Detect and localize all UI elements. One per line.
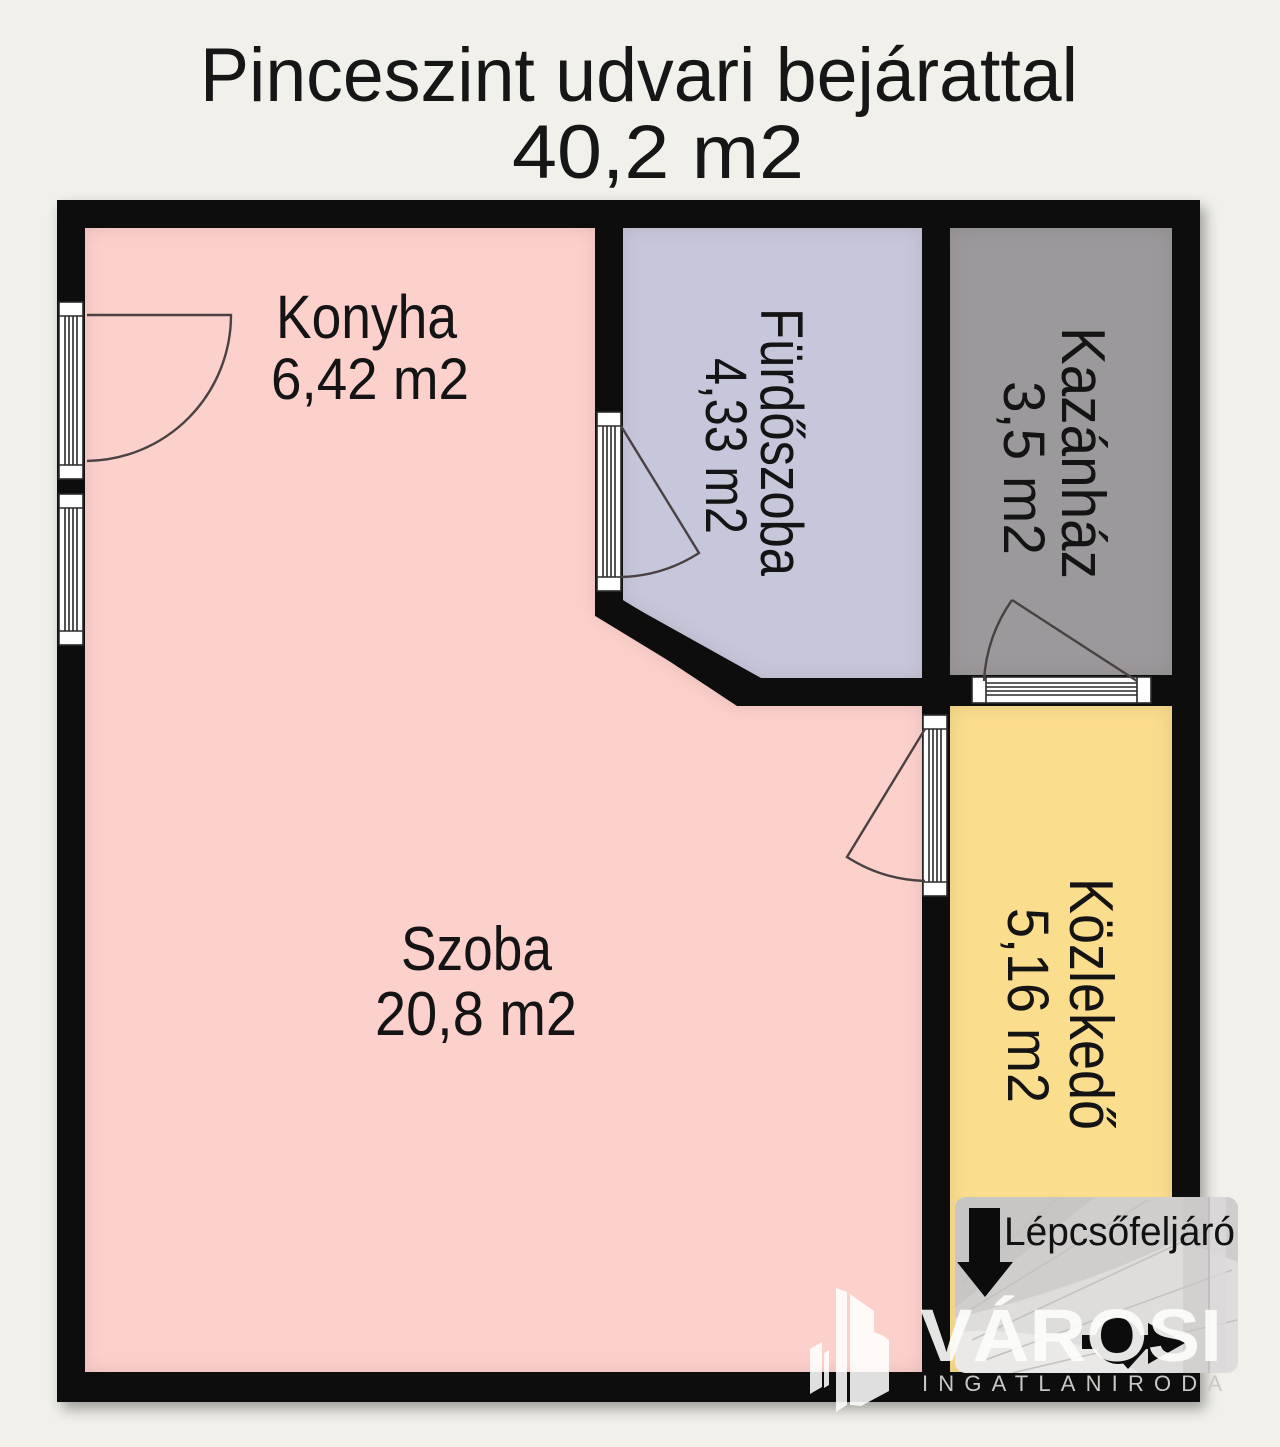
svg-text:Szoba: Szoba [401, 915, 552, 984]
svg-text:Pinceszint udvari bejárattal: Pinceszint udvari bejárattal [200, 33, 1078, 118]
svg-text:Lépcsőfeljáró: Lépcsőfeljáró [1004, 1210, 1235, 1254]
svg-text:3,5 m2: 3,5 m2 [991, 381, 1056, 555]
svg-text:Kazánház: Kazánház [1048, 327, 1117, 579]
svg-text:40,2 m2: 40,2 m2 [512, 110, 804, 195]
svg-text:Közlekedő: Közlekedő [1056, 878, 1125, 1130]
svg-text:5,16 m2: 5,16 m2 [995, 908, 1060, 1103]
svg-text:Konyha: Konyha [276, 283, 457, 351]
svg-text:VÁROSI: VÁROSI [920, 1294, 1222, 1377]
svg-text:4,33 m2: 4,33 m2 [693, 358, 758, 534]
svg-text:6,42 m2: 6,42 m2 [271, 347, 469, 412]
svg-text:20,8 m2: 20,8 m2 [375, 980, 577, 1049]
